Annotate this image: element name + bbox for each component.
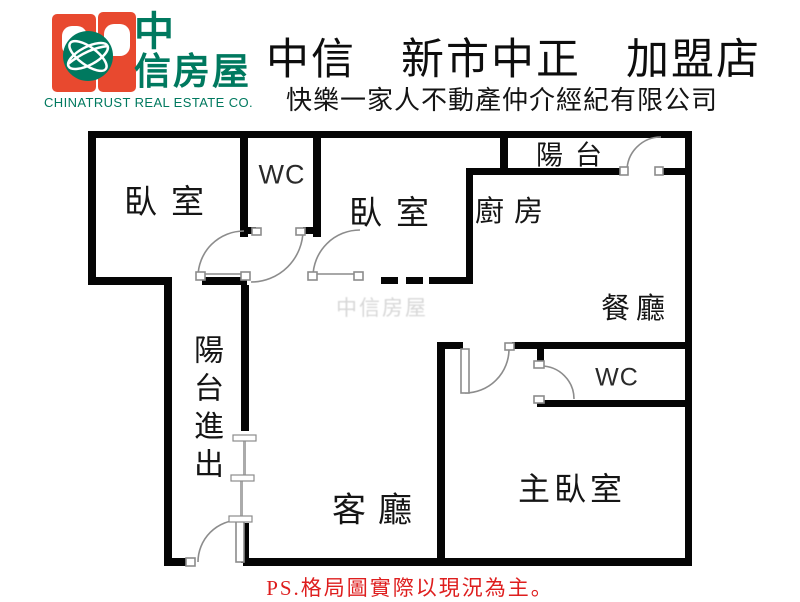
room-label-wc-right: WC xyxy=(595,364,639,393)
window-cap xyxy=(231,475,254,481)
room-label-kitchen: 廚房 xyxy=(475,188,553,230)
window-sliding-symbols xyxy=(229,435,256,522)
room-label-balcony-top: 陽台 xyxy=(536,134,614,173)
room-label-dining: 餐廳 xyxy=(601,285,671,327)
window-cap xyxy=(233,435,256,441)
wall-bottom xyxy=(243,558,692,566)
door-hinge xyxy=(296,228,305,235)
room-label-bedroom-top-left: 臥室 xyxy=(124,175,218,223)
door-arc-bedroom2 xyxy=(313,230,360,277)
wall-wc1-right xyxy=(313,131,321,237)
wall-left-lower xyxy=(164,277,172,566)
door-leaf-master xyxy=(461,349,469,393)
door-arc-entry xyxy=(198,520,240,562)
wall-left-upper xyxy=(88,131,96,285)
door-arc-bedroom1 xyxy=(198,231,244,277)
room-label-master-bedroom: 主臥室 xyxy=(518,464,626,510)
watermark: 中信房屋 xyxy=(336,292,428,322)
window-cap xyxy=(229,516,252,522)
door-arc-balcony xyxy=(627,137,661,171)
wall-mid-solid xyxy=(429,277,473,284)
wall-master-top-right xyxy=(512,342,692,349)
door-hinge xyxy=(186,558,195,566)
window-pane xyxy=(240,481,243,516)
door-hinge xyxy=(534,396,544,403)
door-hinge xyxy=(534,361,544,368)
door-arc-wc1 xyxy=(251,230,303,282)
door-arc-master xyxy=(465,349,509,393)
wall-right xyxy=(685,131,692,566)
door-hinge xyxy=(505,343,514,350)
door-hinge xyxy=(252,228,261,235)
window-pane xyxy=(243,441,246,475)
door-hinge xyxy=(354,272,363,280)
door-hinge xyxy=(620,167,628,175)
wall-wc1-left xyxy=(240,131,248,237)
wall-kitchen-left xyxy=(466,168,473,284)
door-arc-wc2 xyxy=(541,366,574,399)
room-label-bedroom-middle: 臥室 xyxy=(349,186,443,234)
footer-note: PS.格局圖實際以現況為主。 xyxy=(140,572,680,602)
room-label-living-room: 客廳 xyxy=(332,483,424,532)
room-label-wc-top: WC xyxy=(259,160,306,191)
door-hinge xyxy=(655,167,663,175)
wall-living-master-divider xyxy=(437,342,445,566)
room-label-balcony-access: 陽台進出 xyxy=(183,334,227,486)
wall-strip-right-upper xyxy=(241,285,249,431)
wall-bottom-left-stub xyxy=(164,558,188,566)
door-leaf-entry xyxy=(236,519,244,562)
wall-mid-dash1 xyxy=(381,277,398,284)
wall-wc2-bottom xyxy=(537,400,692,407)
door-hinge xyxy=(308,272,317,280)
wall-bedroom1-bottom xyxy=(88,277,170,285)
door-hinge xyxy=(196,272,205,280)
wall-mid-dash2 xyxy=(406,277,423,284)
door-hinge xyxy=(241,272,250,280)
